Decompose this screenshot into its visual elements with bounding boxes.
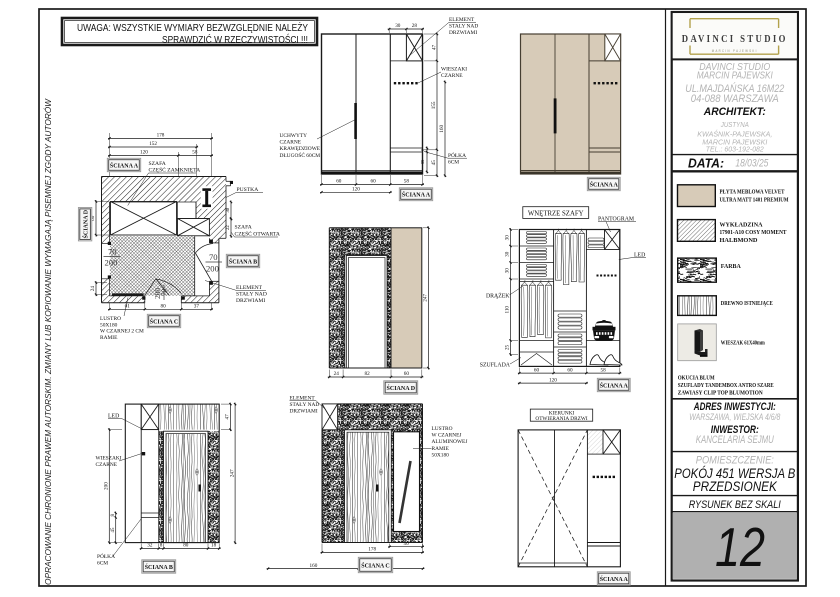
svg-text:160: 160 <box>439 125 445 133</box>
svg-text:50X180: 50X180 <box>432 452 450 458</box>
svg-text:22: 22 <box>226 225 231 230</box>
svg-text:RAMIE: RAMIE <box>432 446 450 452</box>
svg-text:ŚCIANA C: ŚCIANA C <box>361 561 390 569</box>
svg-text:30: 30 <box>505 251 511 257</box>
svg-text:ARCHITEKT:: ARCHITEKT: <box>703 106 766 118</box>
svg-text:CZARNE: CZARNE <box>280 140 302 146</box>
svg-text:CZARNE: CZARNE <box>441 73 463 79</box>
svg-text:82: 82 <box>365 371 371 377</box>
svg-text:ŚCIANA A: ŚCIANA A <box>402 191 431 199</box>
svg-text:KRAWĘDZIOWE: KRAWĘDZIOWE <box>280 146 321 152</box>
svg-text:50X180: 50X180 <box>100 322 118 328</box>
svg-text:WYKŁADZINA: WYKŁADZINA <box>720 221 763 228</box>
svg-text:ŚCIANA A: ŚCIANA A <box>600 575 629 583</box>
svg-text:ŚCIANA D: ŚCIANA D <box>82 209 90 238</box>
svg-text:DAVINCI STUDIO: DAVINCI STUDIO <box>682 33 788 45</box>
svg-text:ŚCIANA A: ŚCIANA A <box>600 381 629 389</box>
svg-text:W CZARNEJ: W CZARNEJ <box>432 433 462 439</box>
svg-text:RYSUNEK BEZ SKALI: RYSUNEK BEZ SKALI <box>689 499 781 511</box>
svg-text:KANCELARIA SEJMU: KANCELARIA SEJMU <box>696 434 774 446</box>
svg-text:18/03/25: 18/03/25 <box>735 157 769 169</box>
svg-text:200: 200 <box>153 288 162 299</box>
svg-text:STAŁY NAD: STAŁY NAD <box>236 291 267 297</box>
svg-text:70: 70 <box>108 247 117 257</box>
svg-text:DRĄŻEK: DRĄŻEK <box>486 293 510 300</box>
svg-text:25: 25 <box>505 345 511 351</box>
svg-text:LUSTRO: LUSTRO <box>100 316 121 322</box>
svg-text:60: 60 <box>567 367 573 373</box>
svg-text:80: 80 <box>161 304 167 310</box>
svg-text:DATA:: DATA: <box>688 155 724 170</box>
svg-text:DREWNO ISTNIEJĄCE: DREWNO ISTNIEJĄCE <box>721 300 773 307</box>
svg-text:155: 155 <box>431 101 437 109</box>
svg-text:MARCIN PAJEWSKI: MARCIN PAJEWSKI <box>712 49 758 53</box>
svg-text:24: 24 <box>334 371 340 377</box>
svg-text:PŁYTA MEBLOWA VELVET: PŁYTA MEBLOWA VELVET <box>720 189 786 196</box>
svg-text:LUSTRO: LUSTRO <box>432 426 453 432</box>
svg-text:STAŁY NAD: STAŁY NAD <box>290 402 320 408</box>
svg-text:WIESZAKI: WIESZAKI <box>441 67 467 73</box>
svg-text:DRZWIAMI: DRZWIAMI <box>290 409 318 415</box>
svg-text:178: 178 <box>157 133 165 139</box>
svg-text:CZĘŚĆ OTWARTA: CZĘŚĆ OTWARTA <box>235 230 280 238</box>
svg-text:50: 50 <box>404 541 410 547</box>
svg-text:6CM: 6CM <box>448 160 459 166</box>
svg-text:60: 60 <box>371 179 377 185</box>
svg-text:PÓŁKA: PÓŁKA <box>448 151 466 159</box>
svg-text:24: 24 <box>90 286 96 292</box>
svg-text:WIESZAK 61X40mm: WIESZAK 61X40mm <box>721 340 765 347</box>
svg-text:WARSZAWA, WIEJSKA 4/6/8: WARSZAWA, WIEJSKA 4/6/8 <box>689 412 780 422</box>
svg-text:58: 58 <box>192 150 198 156</box>
svg-text:30: 30 <box>395 23 401 29</box>
svg-text:200: 200 <box>206 264 219 274</box>
svg-text:30: 30 <box>226 207 231 212</box>
svg-text:W CZARNEJ 2 CM: W CZARNEJ 2 CM <box>100 329 144 335</box>
svg-text:58: 58 <box>404 179 410 185</box>
svg-text:MARCIN PAJEWSKI: MARCIN PAJEWSKI <box>697 71 773 82</box>
svg-text:OPRACOWANIE CHRONIONE PRAWEM A: OPRACOWANIE CHRONIONE PRAWEM AUTORSKIM. … <box>44 98 53 585</box>
svg-text:200: 200 <box>105 258 118 268</box>
svg-text:PRZEDSIONEK: PRZEDSIONEK <box>693 479 778 494</box>
svg-text:FARBA: FARBA <box>721 263 741 270</box>
svg-text:37: 37 <box>194 304 200 310</box>
svg-text:CZARNE: CZARNE <box>96 462 118 468</box>
svg-text:ŚCIANA B: ŚCIANA B <box>145 563 173 571</box>
svg-text:47: 47 <box>225 414 231 420</box>
svg-text:SPRAWDZIĆ W RZECZYWISTOŚCI !!!: SPRAWDZIĆ W RZECZYWISTOŚCI !!! <box>162 33 308 46</box>
svg-text:DRZWIAMI: DRZWIAMI <box>449 30 477 36</box>
svg-text:DRZWIAMI: DRZWIAMI <box>236 298 265 304</box>
svg-text:80: 80 <box>183 543 189 549</box>
svg-text:47: 47 <box>431 44 437 50</box>
svg-text:WNĘTRZE SZAFY: WNĘTRZE SZAFY <box>528 210 584 217</box>
svg-text:120: 120 <box>352 187 360 193</box>
svg-text:120: 120 <box>549 377 557 383</box>
svg-text:HALBMOND: HALBMOND <box>720 237 758 244</box>
svg-text:45: 45 <box>111 527 116 532</box>
svg-text:SZUFLADA: SZUFLADA <box>480 363 511 369</box>
svg-text:45: 45 <box>431 160 437 166</box>
svg-text:8: 8 <box>160 543 163 549</box>
svg-text:TEL.: 603-192-082: TEL.: 603-192-082 <box>706 145 765 154</box>
svg-text:ŚCIANA A: ŚCIANA A <box>590 180 619 188</box>
svg-text:ALUMINOWEJ: ALUMINOWEJ <box>432 439 468 445</box>
svg-text:60: 60 <box>336 179 342 185</box>
svg-text:30: 30 <box>505 235 511 241</box>
svg-text:STALY NAD: STALY NAD <box>449 24 478 30</box>
svg-text:OKUCIA BLUM: OKUCIA BLUM <box>678 375 716 382</box>
svg-text:ŚCIANA C: ŚCIANA C <box>150 317 179 325</box>
svg-text:30: 30 <box>505 268 511 274</box>
svg-text:18: 18 <box>211 543 217 549</box>
svg-text:200: 200 <box>104 482 110 490</box>
svg-text:120: 120 <box>140 150 148 156</box>
svg-text:OTWIERANIA DRZWI: OTWIERANIA DRZWI <box>535 416 587 422</box>
svg-text:PÓŁKA: PÓŁKA <box>97 552 115 560</box>
svg-text:ŚCIANA A: ŚCIANA A <box>110 161 139 169</box>
svg-text:60: 60 <box>404 371 410 377</box>
svg-text:SZAFA: SZAFA <box>149 161 166 167</box>
svg-text:70: 70 <box>209 252 218 262</box>
svg-text:DŁUGOŚĆ 60CM: DŁUGOŚĆ 60CM <box>280 151 321 159</box>
svg-text:110: 110 <box>505 306 511 314</box>
svg-text:CZĘŚĆ ZAMKNIĘTA: CZĘŚĆ ZAMKNIĘTA <box>149 166 201 174</box>
svg-text:152: 152 <box>149 141 157 147</box>
svg-text:POMIESZCZENIE:: POMIESZCZENIE: <box>696 454 774 466</box>
svg-text:WIESZAKI: WIESZAKI <box>96 456 122 462</box>
svg-text:6CM: 6CM <box>97 561 108 567</box>
svg-text:ŚCIANA D: ŚCIANA D <box>387 384 416 392</box>
svg-text:32: 32 <box>147 543 153 549</box>
svg-text:SZUFLADY TANDEMBOX ANTRO SZARE: SZUFLADY TANDEMBOX ANTRO SZARE <box>678 382 774 389</box>
svg-text:ZAWIASY CLIP TOP BLUMOTION: ZAWIASY CLIP TOP BLUMOTION <box>678 390 763 397</box>
svg-text:247: 247 <box>229 469 235 477</box>
svg-text:UCHWYTY: UCHWYTY <box>280 133 308 139</box>
svg-text:ŚCIANA B: ŚCIANA B <box>229 257 257 265</box>
svg-text:JUSTYNA: JUSTYNA <box>720 120 749 129</box>
svg-text:35: 35 <box>420 159 425 164</box>
svg-text:SZAFA: SZAFA <box>235 225 252 231</box>
svg-text:ULTRA MATT 1401 PREMIUM: ULTRA MATT 1401 PREMIUM <box>720 196 789 203</box>
svg-text:247: 247 <box>423 294 429 302</box>
svg-text:RAMIE: RAMIE <box>100 335 118 341</box>
svg-text:160: 160 <box>310 563 318 569</box>
svg-text:58: 58 <box>601 367 607 373</box>
svg-text:UWAGA: WSZYSTKIE WYMIARY BEZWZ: UWAGA: WSZYSTKIE WYMIARY BEZWZGLĘDNIE NA… <box>77 21 308 34</box>
svg-text:60: 60 <box>534 367 540 373</box>
svg-text:04-088 WARSZAWA: 04-088 WARSZAWA <box>691 93 779 105</box>
svg-text:28: 28 <box>412 23 418 29</box>
svg-text:12: 12 <box>715 516 765 578</box>
svg-text:178: 178 <box>368 547 376 553</box>
svg-text:17901-A10 COSY MOMENT: 17901-A10 COSY MOMENT <box>720 229 788 236</box>
